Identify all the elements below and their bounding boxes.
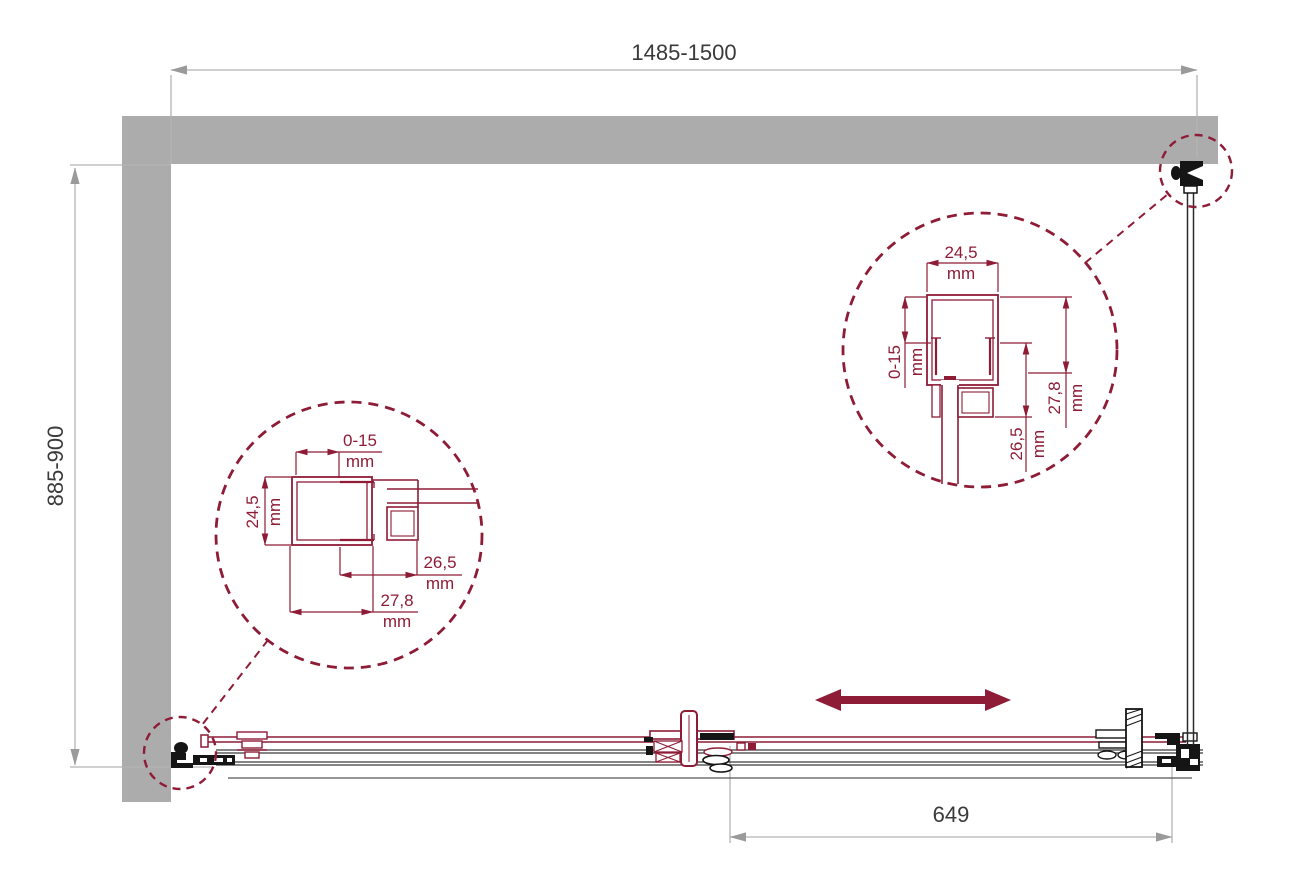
slide-direction-arrow: [815, 689, 1011, 711]
carriage-part: [646, 746, 653, 755]
overall-width-label: 1485-1500: [631, 40, 736, 65]
corner-slot: [1162, 759, 1171, 763]
roller-wheel: [1098, 751, 1116, 759]
detail-dim-unit: mm: [1029, 430, 1048, 458]
fitting-stem: [176, 753, 186, 760]
roller-wheel: [703, 756, 729, 765]
glass-gasket: [944, 376, 956, 380]
door-opening-label: 649: [933, 802, 970, 827]
detail-dim-value: 26,5: [423, 553, 456, 572]
profile-outer: [927, 295, 998, 385]
profile-outer: [292, 477, 372, 545]
profile-opening: [941, 380, 959, 387]
carriage-part: [644, 737, 653, 742]
top-wall: [122, 116, 1218, 164]
detail-dim-unit: mm: [346, 452, 374, 471]
left-wall: [122, 116, 171, 802]
overall-depth-label: 885-900: [43, 426, 68, 507]
roller-clamp: [242, 741, 262, 748]
detail-dim-value: 24,5: [944, 243, 977, 262]
roller-wheel: [710, 764, 732, 772]
carriage-plate-black: [700, 733, 734, 740]
leader-line-right: [1085, 194, 1168, 263]
detail-dim-value: 24,5: [243, 495, 262, 528]
connector: [737, 743, 745, 750]
fitting-knob: [1171, 166, 1181, 180]
top-wall-fitting: [1171, 161, 1203, 193]
detail-dim-unit: mm: [383, 612, 411, 631]
fitting-slot: [227, 758, 232, 762]
detail-left-profile: [292, 477, 478, 545]
detail-dim-value: 27,8: [1045, 381, 1064, 414]
track-rails: [201, 735, 1203, 778]
glass-clamp: [1183, 733, 1197, 741]
detail-dim-unit: mm: [907, 348, 926, 376]
drawing-svg: 1485-1500 885-900 649: [0, 0, 1300, 890]
side-glass-panel: [1188, 186, 1194, 745]
detail-dim-value: 0-15: [343, 431, 377, 450]
detail-dim-unit: mm: [265, 498, 284, 526]
connector: [748, 743, 756, 750]
roller-clamp: [237, 732, 267, 739]
profile-box: [387, 507, 418, 540]
detail-dim-value: 0-15: [885, 345, 904, 379]
corner-detail: [1190, 759, 1198, 765]
dimension-door-opening: 649: [730, 746, 1172, 843]
detail-circles: [144, 135, 1232, 789]
walls: [122, 116, 1218, 802]
detail-dim-value: 26,5: [1007, 427, 1026, 460]
shower-enclosure-drawing: 1485-1500 885-900 649: [0, 0, 1300, 890]
detail-right-profile: [927, 295, 998, 484]
fitting-slot: [200, 758, 207, 762]
profile-strip: [932, 385, 940, 417]
glass-clamp: [1184, 186, 1197, 193]
corner-detail: [1181, 749, 1189, 758]
corner-angle: [1155, 733, 1180, 745]
detail-dim-unit: mm: [1067, 384, 1086, 412]
detail-dim-unit: mm: [947, 264, 975, 283]
leader-line-left: [202, 640, 268, 725]
detail-dim-value: 27,8: [380, 591, 413, 610]
detail-dim-unit: mm: [426, 574, 454, 593]
door-end-cap: [201, 735, 208, 747]
roller-clamp: [245, 752, 259, 758]
